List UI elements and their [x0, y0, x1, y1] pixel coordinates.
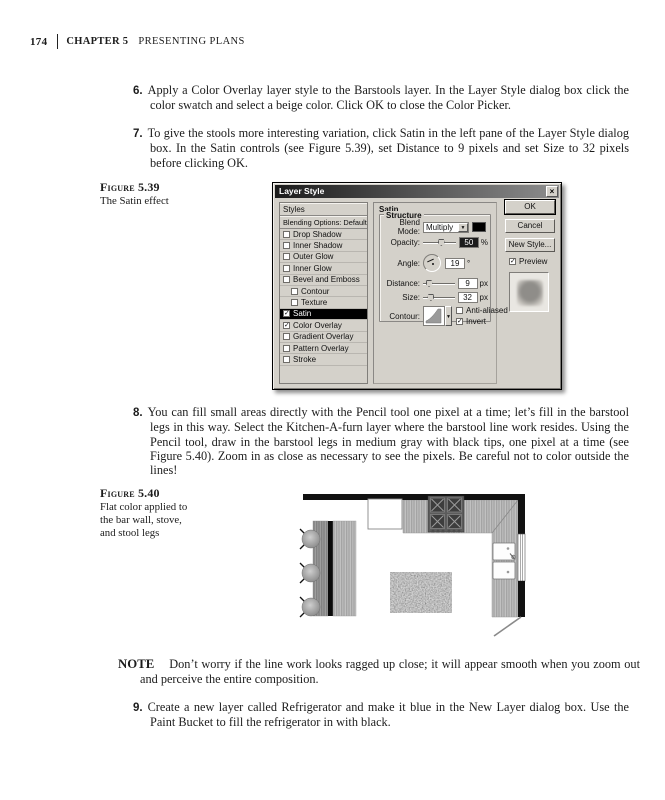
slider-thumb[interactable]	[427, 294, 434, 301]
checkbox-icon[interactable]	[283, 231, 290, 238]
step-text: You can fill small areas directly with t…	[148, 405, 629, 477]
barstools	[300, 529, 320, 617]
contour-curve-icon	[424, 307, 444, 325]
stove	[428, 496, 464, 532]
bar-wall-black	[328, 521, 333, 616]
opacity-label: Opacity:	[382, 238, 420, 247]
invert-option[interactable]: ✓ Invert	[456, 317, 508, 326]
style-preview-thumbnail	[509, 272, 549, 312]
preview-label: Preview	[519, 257, 547, 266]
step-8: 8.You can fill small areas directly with…	[133, 405, 629, 477]
checkbox-checked-icon[interactable]: ✓	[456, 318, 463, 325]
checkbox-icon[interactable]	[283, 253, 290, 260]
size-unit: px	[480, 293, 488, 302]
dialog-buttons: OK Cancel New Style... ✓ Preview	[503, 200, 555, 312]
style-item-drop-shadow[interactable]: Drop Shadow	[280, 229, 367, 240]
size-slider[interactable]	[423, 293, 455, 301]
style-item-satin[interactable]: ✓Satin	[280, 309, 367, 320]
angle-value[interactable]: 19	[445, 258, 465, 269]
distance-row: Distance: 9 px	[382, 277, 488, 289]
ok-button[interactable]: OK	[505, 200, 555, 214]
opacity-unit: %	[481, 238, 488, 247]
style-item-pattern-overlay[interactable]: Pattern Overlay	[280, 343, 367, 354]
step-text: Create a new layer called Refrigerator a…	[148, 700, 629, 729]
checkbox-checked-icon[interactable]: ✓	[283, 310, 290, 317]
step-7: 7.To give the stools more interesting va…	[133, 126, 629, 170]
angle-label: Angle:	[382, 259, 420, 268]
dialog-titlebar[interactable]: Layer Style ×	[275, 185, 559, 198]
barstool	[300, 529, 320, 549]
checkbox-checked-icon[interactable]: ✓	[283, 322, 290, 329]
angle-unit: °	[467, 259, 470, 268]
style-item-texture[interactable]: Texture	[280, 297, 367, 308]
preview-option[interactable]: ✓ Preview	[509, 257, 555, 266]
satin-panel: Satin Structure Blend Mode: Multiply ▼ O…	[373, 202, 497, 384]
note-label: NOTE	[118, 657, 154, 671]
structure-group: Structure Blend Mode: Multiply ▼ Opacity…	[379, 214, 491, 322]
style-item-gradient-overlay[interactable]: Gradient Overlay	[280, 332, 367, 343]
step-number: 6.	[133, 85, 143, 97]
size-label: Size:	[382, 293, 420, 302]
chevron-down-icon[interactable]: ▼	[458, 223, 468, 232]
blend-mode-select[interactable]: Multiply ▼	[423, 222, 469, 233]
contour-picker-arrow-icon[interactable]: ▼	[445, 306, 452, 326]
blend-mode-row: Blend Mode: Multiply ▼	[382, 221, 488, 233]
figure-5-39-caption: Figure 5.39 The Satin effect	[100, 181, 200, 208]
chapter-label: CHAPTER 5	[66, 36, 128, 47]
checkbox-icon[interactable]	[456, 307, 463, 314]
anti-aliased-label: Anti-aliased	[466, 306, 508, 315]
blend-mode-label: Blend Mode:	[382, 218, 420, 236]
style-item-color-overlay[interactable]: ✓Color Overlay	[280, 320, 367, 331]
contour-thumbnail[interactable]	[423, 306, 445, 326]
slider-thumb[interactable]	[438, 239, 445, 246]
header-divider	[57, 34, 58, 49]
refrigerator	[368, 499, 402, 529]
style-item-inner-glow[interactable]: Inner Glow	[280, 263, 367, 274]
checkbox-icon[interactable]	[283, 242, 290, 249]
distance-unit: px	[480, 279, 488, 288]
rug	[390, 572, 452, 613]
note-text: Don’t worry if the line work looks ragge…	[140, 657, 640, 686]
floor-plan-svg	[288, 486, 538, 638]
checkbox-icon[interactable]	[291, 299, 298, 306]
checkbox-icon[interactable]	[283, 333, 290, 340]
distance-label: Distance:	[382, 279, 420, 288]
step-6: 6.Apply a Color Overlay layer style to t…	[133, 83, 629, 113]
note-paragraph: NOTEDon’t worry if the line work looks r…	[118, 657, 640, 687]
cancel-button[interactable]: Cancel	[505, 219, 555, 233]
new-style-button[interactable]: New Style...	[505, 238, 555, 252]
chapter-title: PRESENTING PLANS	[138, 36, 244, 47]
right-window	[518, 534, 525, 581]
figure-caption-text: The Satin effect	[100, 195, 169, 207]
checkbox-icon[interactable]	[291, 288, 298, 295]
figure-label: Figure 5.40	[100, 487, 200, 500]
contour-row: Contour: ▼ Anti-aliased ✓ Invert	[382, 305, 488, 327]
figure-label: Figure 5.39	[100, 181, 200, 194]
styles-header[interactable]: Styles	[280, 203, 367, 216]
checkbox-checked-icon[interactable]: ✓	[509, 258, 516, 265]
barstool	[300, 563, 320, 583]
step-text: Apply a Color Overlay layer style to the…	[148, 83, 629, 112]
anti-aliased-option[interactable]: Anti-aliased	[456, 306, 508, 315]
close-icon[interactable]: ×	[546, 186, 558, 197]
style-item-bevel-emboss[interactable]: Bevel and Emboss	[280, 275, 367, 286]
style-item-stroke[interactable]: Stroke	[280, 354, 367, 365]
door-swing-line	[494, 617, 521, 636]
checkbox-icon[interactable]	[283, 265, 290, 272]
figure-5-40-caption: Figure 5.40 Flat color applied to the ba…	[100, 487, 200, 540]
running-head: 174 CHAPTER 5 PRESENTING PLANS	[30, 34, 245, 49]
step-number: 7.	[133, 128, 143, 140]
top-wall	[303, 494, 525, 500]
size-row: Size: 32 px	[382, 291, 488, 303]
step-9: 9.Create a new layer called Refrigerator…	[133, 700, 629, 730]
blend-color-swatch[interactable]	[472, 222, 486, 232]
distance-value[interactable]: 9	[458, 278, 478, 289]
dialog-title: Layer Style	[279, 186, 324, 196]
preview-blob	[517, 280, 543, 306]
layer-style-dialog: Layer Style × Styles Blending Options: D…	[272, 182, 562, 390]
checkbox-icon[interactable]	[283, 276, 290, 283]
style-item-inner-shadow[interactable]: Inner Shadow	[280, 240, 367, 251]
angle-dial[interactable]	[423, 254, 441, 272]
styles-pane: Styles Blending Options: Default Drop Sh…	[279, 202, 368, 384]
opacity-value[interactable]: 50	[459, 237, 479, 248]
checkbox-icon[interactable]	[283, 356, 290, 363]
invert-label: Invert	[466, 317, 486, 326]
dial-needle	[427, 259, 434, 263]
style-item-outer-glow[interactable]: Outer Glow	[280, 252, 367, 263]
page-number: 174	[30, 36, 47, 48]
checkbox-icon[interactable]	[283, 345, 290, 352]
figure-caption-text: Flat color applied to the bar wall, stov…	[100, 501, 187, 539]
opacity-row: Opacity: 50 %	[382, 236, 488, 248]
barstool	[300, 597, 320, 617]
dial-center	[432, 263, 434, 265]
size-value[interactable]: 32	[458, 292, 478, 303]
distance-slider[interactable]	[423, 279, 455, 287]
angle-row: Angle: 19 °	[382, 253, 488, 273]
right-wall-lower	[518, 581, 525, 617]
slider-thumb[interactable]	[426, 280, 433, 287]
blending-options-item[interactable]: Blending Options: Default	[280, 216, 367, 229]
right-wall-upper	[518, 500, 525, 534]
style-item-contour[interactable]: Contour	[280, 286, 367, 297]
opacity-slider[interactable]	[423, 238, 456, 246]
contour-label: Contour:	[382, 312, 420, 321]
step-number: 9.	[133, 702, 143, 714]
step-text: To give the stools more interesting vari…	[148, 126, 629, 170]
floor-plan-figure	[288, 486, 538, 638]
step-number: 8.	[133, 407, 143, 419]
